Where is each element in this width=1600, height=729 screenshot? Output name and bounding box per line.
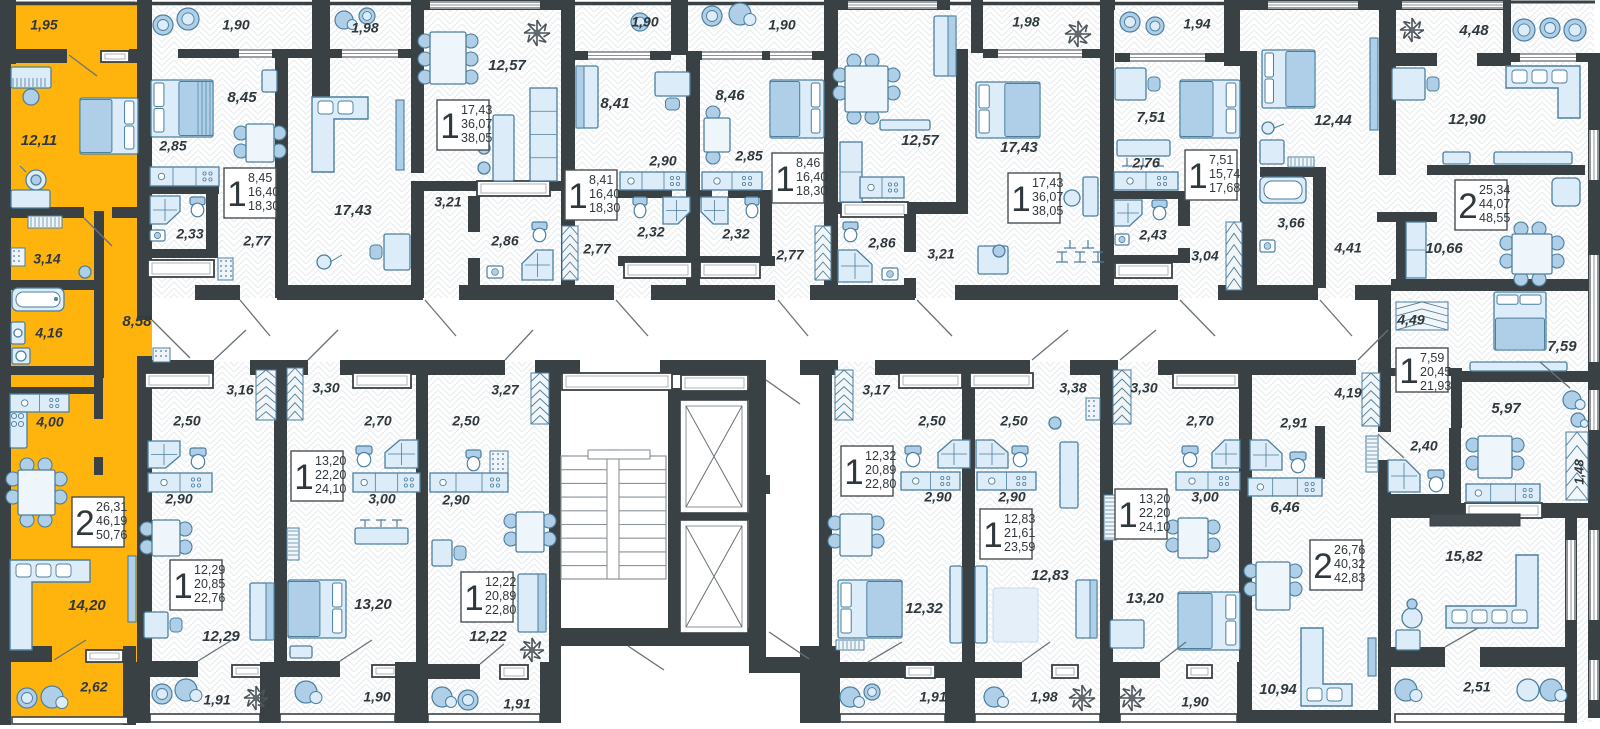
svg-text:12,90: 12,90 [1448, 111, 1486, 128]
svg-text:2,50: 2,50 [917, 413, 945, 429]
svg-text:8,45: 8,45 [227, 89, 257, 106]
svg-text:16,40: 16,40 [248, 185, 279, 199]
svg-text:12,57: 12,57 [488, 57, 526, 74]
svg-text:21,93: 21,93 [1420, 379, 1451, 393]
svg-text:3,30: 3,30 [312, 380, 339, 396]
svg-text:12,32: 12,32 [905, 600, 943, 617]
svg-text:2,77: 2,77 [775, 247, 804, 263]
svg-text:4,48: 4,48 [1458, 22, 1489, 39]
svg-text:13,20: 13,20 [1126, 590, 1164, 607]
svg-text:3,27: 3,27 [491, 382, 519, 398]
svg-text:1: 1 [227, 175, 246, 214]
svg-text:1,90: 1,90 [1181, 694, 1208, 710]
svg-text:36,07: 36,07 [1032, 190, 1063, 204]
svg-text:2,85: 2,85 [734, 148, 762, 164]
svg-text:20,85: 20,85 [194, 577, 225, 591]
svg-text:2,40: 2,40 [1409, 438, 1437, 454]
svg-text:8,41: 8,41 [589, 173, 613, 187]
svg-text:2,50: 2,50 [451, 413, 479, 429]
svg-text:7,51: 7,51 [1136, 109, 1165, 126]
svg-text:25,34: 25,34 [1479, 183, 1510, 197]
svg-text:1: 1 [173, 567, 192, 606]
svg-text:1: 1 [983, 516, 1002, 555]
svg-text:3,17: 3,17 [862, 382, 890, 398]
svg-text:1,98: 1,98 [351, 20, 378, 36]
svg-text:1,90: 1,90 [363, 689, 390, 705]
svg-text:3,66: 3,66 [1277, 215, 1304, 231]
svg-text:4,19: 4,19 [1333, 385, 1361, 401]
svg-text:4,41: 4,41 [1333, 240, 1361, 256]
svg-text:22,20: 22,20 [1139, 506, 1170, 520]
svg-text:13,20: 13,20 [1139, 492, 1170, 506]
svg-text:1,90: 1,90 [631, 14, 658, 30]
svg-text:38,05: 38,05 [461, 131, 492, 145]
svg-text:2,76: 2,76 [1131, 155, 1159, 171]
svg-text:1,98: 1,98 [1012, 14, 1039, 30]
svg-text:50,76: 50,76 [96, 528, 127, 542]
svg-text:8,46: 8,46 [796, 156, 820, 170]
svg-text:2,70: 2,70 [1185, 413, 1213, 429]
svg-text:2,77: 2,77 [582, 241, 611, 257]
svg-text:2: 2 [1458, 187, 1477, 226]
svg-text:15,82: 15,82 [1445, 548, 1483, 565]
svg-text:1: 1 [1399, 352, 1418, 391]
svg-text:3,00: 3,00 [368, 491, 395, 507]
svg-text:42,83: 42,83 [1334, 571, 1365, 585]
svg-text:46,19: 46,19 [96, 514, 127, 528]
svg-text:38,05: 38,05 [1032, 204, 1063, 218]
svg-text:4,16: 4,16 [34, 325, 62, 341]
svg-text:2,32: 2,32 [721, 226, 749, 242]
svg-text:2,77: 2,77 [242, 233, 271, 249]
svg-text:2,90: 2,90 [441, 492, 469, 508]
svg-text:2,85: 2,85 [158, 138, 186, 154]
svg-text:20,45: 20,45 [1420, 365, 1451, 379]
svg-text:2,86: 2,86 [490, 233, 518, 249]
svg-text:1,95: 1,95 [30, 17, 57, 33]
svg-text:4,00: 4,00 [35, 414, 63, 430]
svg-text:1,90: 1,90 [222, 17, 249, 33]
svg-text:12,32: 12,32 [865, 449, 896, 463]
svg-text:2: 2 [1313, 547, 1332, 586]
svg-text:1: 1 [844, 453, 863, 492]
svg-text:3,21: 3,21 [434, 194, 461, 210]
svg-text:2,50: 2,50 [172, 413, 200, 429]
svg-text:36,07: 36,07 [461, 117, 492, 131]
svg-text:22,80: 22,80 [865, 477, 896, 491]
svg-text:40,32: 40,32 [1334, 557, 1365, 571]
svg-text:12,44: 12,44 [1314, 112, 1352, 129]
svg-text:12,22: 12,22 [469, 628, 507, 645]
svg-text:2,51: 2,51 [1462, 679, 1490, 695]
svg-text:12,83: 12,83 [1031, 567, 1069, 584]
svg-text:2,90: 2,90 [997, 489, 1025, 505]
svg-text:26,31: 26,31 [96, 500, 127, 514]
svg-text:12,11: 12,11 [21, 132, 57, 149]
svg-text:7,51: 7,51 [1209, 153, 1233, 167]
svg-text:1,91: 1,91 [919, 689, 946, 705]
svg-text:3,38: 3,38 [1059, 380, 1086, 396]
svg-text:3,16: 3,16 [226, 382, 253, 398]
svg-text:14,20: 14,20 [68, 597, 106, 614]
svg-text:3,04: 3,04 [1191, 248, 1218, 264]
svg-text:2,91: 2,91 [1279, 415, 1307, 431]
svg-text:2,43: 2,43 [1138, 227, 1166, 243]
svg-text:2,90: 2,90 [648, 153, 676, 169]
svg-text:13,20: 13,20 [315, 454, 346, 468]
svg-text:2,90: 2,90 [164, 491, 192, 507]
svg-text:2,33: 2,33 [175, 226, 203, 242]
svg-text:13,20: 13,20 [354, 596, 392, 613]
svg-text:7,59: 7,59 [1547, 338, 1577, 355]
svg-text:2: 2 [75, 504, 94, 543]
svg-text:8,41: 8,41 [600, 95, 629, 112]
svg-text:4,49: 4,49 [1396, 312, 1424, 328]
svg-text:12,22: 12,22 [485, 575, 516, 589]
svg-text:8,46: 8,46 [715, 87, 745, 104]
svg-text:26,76: 26,76 [1334, 543, 1365, 557]
svg-text:8,58: 8,58 [122, 313, 152, 330]
svg-text:10,66: 10,66 [1425, 240, 1463, 257]
svg-text:3,00: 3,00 [1191, 489, 1218, 505]
svg-text:16,40: 16,40 [796, 170, 827, 184]
svg-text:3,21: 3,21 [927, 246, 954, 262]
svg-text:1,91: 1,91 [503, 696, 530, 712]
svg-text:12,29: 12,29 [202, 628, 240, 645]
svg-text:2,70: 2,70 [363, 413, 391, 429]
svg-text:20,89: 20,89 [865, 463, 896, 477]
svg-text:17,68: 17,68 [1209, 181, 1240, 195]
svg-text:2,50: 2,50 [999, 413, 1027, 429]
svg-text:5,97: 5,97 [1491, 400, 1521, 417]
svg-text:1: 1 [440, 107, 459, 146]
svg-text:17,43: 17,43 [334, 202, 372, 219]
svg-text:17,43: 17,43 [461, 103, 492, 117]
svg-text:7,59: 7,59 [1420, 351, 1444, 365]
svg-text:12,29: 12,29 [194, 563, 225, 577]
svg-text:22,20: 22,20 [315, 468, 346, 482]
svg-text:1,94: 1,94 [1183, 16, 1210, 32]
svg-text:44,07: 44,07 [1479, 197, 1510, 211]
svg-text:1: 1 [568, 177, 587, 216]
svg-text:3,30: 3,30 [1130, 380, 1157, 396]
svg-text:22,80: 22,80 [485, 603, 516, 617]
svg-text:2,86: 2,86 [867, 235, 895, 251]
svg-text:3,14: 3,14 [33, 251, 60, 267]
svg-text:12,83: 12,83 [1004, 512, 1035, 526]
svg-text:16,40: 16,40 [589, 187, 620, 201]
svg-text:1,48: 1,48 [1571, 459, 1586, 485]
svg-text:1: 1 [775, 160, 794, 199]
svg-text:23,59: 23,59 [1004, 540, 1035, 554]
svg-text:1,91: 1,91 [203, 692, 230, 708]
svg-text:48,55: 48,55 [1479, 211, 1510, 225]
svg-text:1,90: 1,90 [768, 17, 795, 33]
svg-text:12,57: 12,57 [901, 132, 939, 149]
svg-text:18,30: 18,30 [796, 184, 827, 198]
svg-text:2,32: 2,32 [636, 224, 664, 240]
svg-text:18,30: 18,30 [589, 201, 620, 215]
svg-text:1: 1 [1188, 157, 1207, 196]
svg-text:1: 1 [294, 458, 313, 497]
svg-text:17,43: 17,43 [1000, 139, 1038, 156]
svg-text:15,74: 15,74 [1209, 167, 1240, 181]
svg-text:1: 1 [464, 579, 483, 618]
svg-text:24,10: 24,10 [1139, 520, 1170, 534]
svg-text:2,90: 2,90 [923, 489, 951, 505]
svg-text:17,43: 17,43 [1032, 176, 1063, 190]
svg-text:10,94: 10,94 [1259, 681, 1297, 698]
svg-text:1,98: 1,98 [1030, 689, 1057, 705]
svg-text:21,61: 21,61 [1004, 526, 1035, 540]
svg-text:1: 1 [1118, 496, 1137, 535]
svg-text:2,62: 2,62 [79, 679, 107, 695]
svg-text:22,76: 22,76 [194, 591, 225, 605]
svg-text:6,46: 6,46 [1270, 499, 1300, 516]
svg-text:20,89: 20,89 [485, 589, 516, 603]
svg-text:8,45: 8,45 [248, 171, 272, 185]
svg-text:18,30: 18,30 [248, 199, 279, 213]
svg-text:24,10: 24,10 [315, 482, 346, 496]
svg-text:1: 1 [1011, 180, 1030, 219]
